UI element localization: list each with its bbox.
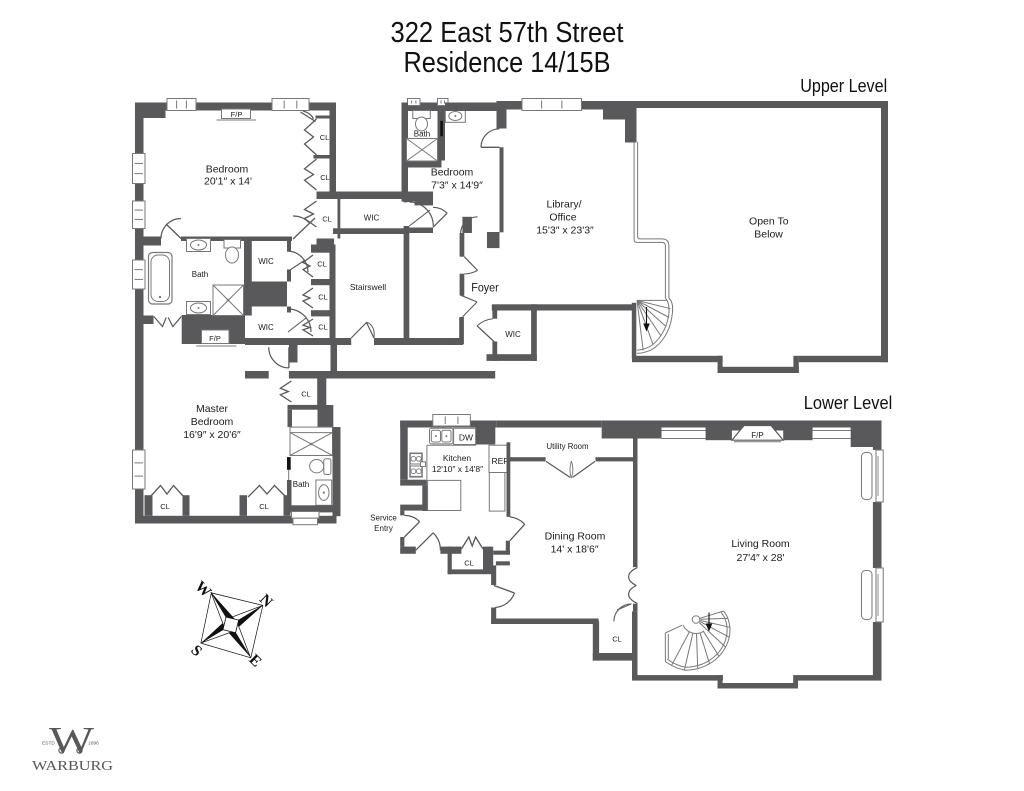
svg-text:14' x 18'6″: 14' x 18'6″ (551, 544, 599, 556)
svg-text:CL: CL (318, 293, 328, 302)
svg-text:Utility Room: Utility Room (547, 441, 589, 451)
svg-text:Dining Room: Dining Room (545, 531, 606, 543)
svg-text:Bedroom: Bedroom (191, 416, 234, 428)
svg-text:Master: Master (196, 403, 229, 415)
svg-text:WIC: WIC (364, 214, 380, 223)
svg-text:CL: CL (320, 133, 330, 142)
svg-text:322 East 57th Street: 322 East 57th Street (391, 17, 624, 49)
svg-text:Bath: Bath (192, 270, 208, 279)
svg-text:Bedroom: Bedroom (431, 167, 474, 179)
svg-text:7'3″ x 14'9″: 7'3″ x 14'9″ (431, 180, 483, 192)
svg-text:F/P: F/P (209, 334, 221, 343)
svg-text:Below: Below (754, 229, 783, 241)
svg-text:WIC: WIC (258, 257, 274, 266)
svg-text:F/P: F/P (751, 431, 763, 440)
svg-text:Lower Level: Lower Level (804, 393, 893, 413)
svg-text:Upper Level: Upper Level (800, 76, 887, 96)
svg-text:CL: CL (464, 559, 474, 568)
svg-text:CL: CL (322, 215, 332, 224)
svg-text:Entry: Entry (374, 524, 393, 533)
svg-text:Open To: Open To (749, 216, 789, 228)
svg-text:1896: 1896 (88, 741, 99, 747)
svg-text:Residence 14/15B: Residence 14/15B (404, 47, 611, 79)
svg-text:Service: Service (370, 514, 397, 523)
svg-text:F/P: F/P (231, 110, 243, 119)
svg-text:DW: DW (459, 433, 473, 443)
svg-text:27'4″ x 28': 27'4″ x 28' (736, 552, 784, 564)
svg-text:WIC: WIC (258, 323, 274, 332)
svg-text:CL: CL (317, 260, 327, 269)
svg-text:CL: CL (160, 502, 170, 511)
svg-text:Office: Office (549, 212, 576, 224)
svg-text:CL: CL (259, 502, 269, 511)
svg-text:Living Room: Living Room (731, 538, 790, 550)
svg-text:CL: CL (301, 390, 311, 399)
svg-text:Library/: Library/ (546, 199, 581, 211)
svg-text:Bath: Bath (293, 480, 309, 489)
svg-text:Stairswell: Stairswell (350, 282, 386, 292)
svg-text:20'1″ x 14': 20'1″ x 14' (204, 176, 252, 188)
svg-text:15'3″ x 23'3″: 15'3″ x 23'3″ (536, 225, 594, 237)
svg-text:12'10″ x 14'8″: 12'10″ x 14'8″ (432, 464, 483, 474)
svg-text:Bedroom: Bedroom (206, 164, 249, 176)
svg-text:Foyer: Foyer (471, 281, 499, 295)
svg-text:ESTD: ESTD (42, 741, 55, 747)
svg-text:CL: CL (320, 173, 330, 182)
svg-text:CL: CL (318, 323, 328, 332)
svg-text:REF: REF (492, 456, 509, 466)
svg-text:16'9″ x 20'6″: 16'9″ x 20'6″ (183, 429, 241, 441)
svg-text:Bath: Bath (414, 130, 430, 139)
svg-text:CL: CL (612, 635, 622, 644)
svg-text:WIC: WIC (505, 330, 521, 339)
svg-text:Kitchen: Kitchen (443, 453, 472, 463)
svg-text:WARBURG: WARBURG (32, 759, 113, 774)
